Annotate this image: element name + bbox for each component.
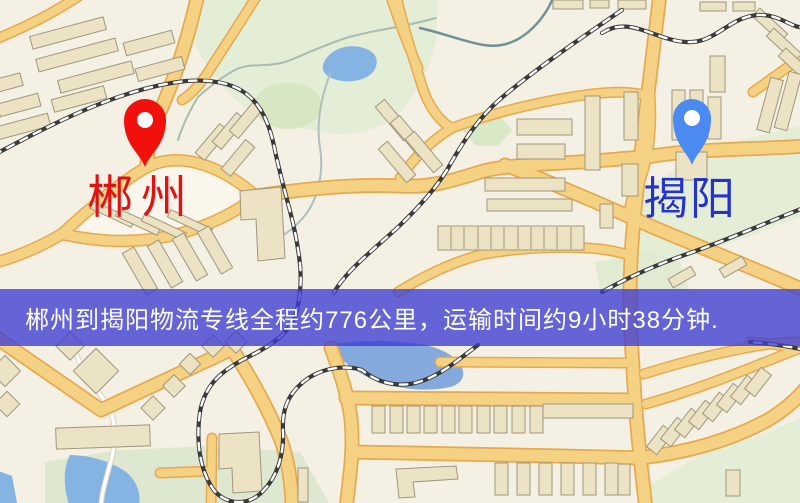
map-canvas [0,0,800,503]
route-info-banner: 郴州到揭阳物流专线全程约776公里，运输时间约9小时38分钟. [0,289,800,346]
destination-label: 揭阳 [643,177,737,222]
origin-label: 郴州 [87,175,195,221]
route-map-image: 郴州 揭阳 郴州到揭阳物流专线全程约776公里，运输时间约9小时38分钟. [0,0,800,503]
route-info-text: 郴州到揭阳物流专线全程约776公里，运输时间约9小时38分钟. [25,300,719,335]
